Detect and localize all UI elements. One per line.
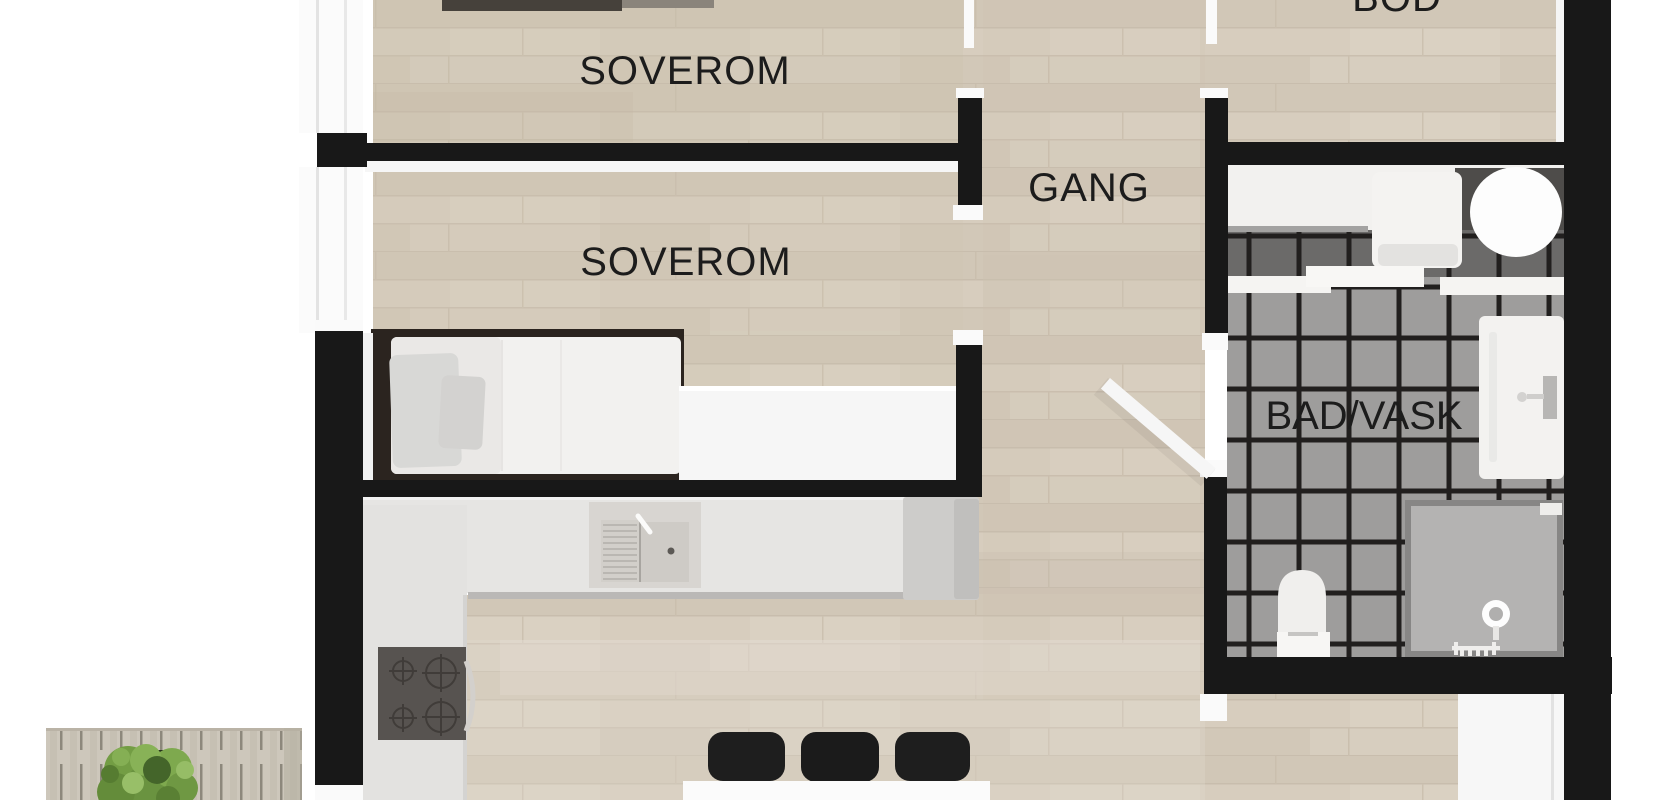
svg-text:BAD/VASK: BAD/VASK xyxy=(1265,394,1462,438)
svg-text:SOVEROM: SOVEROM xyxy=(579,49,790,93)
svg-text:GANG: GANG xyxy=(1028,166,1150,210)
svg-text:BOD: BOD xyxy=(1352,0,1442,20)
svg-text:SOVEROM: SOVEROM xyxy=(580,240,791,284)
